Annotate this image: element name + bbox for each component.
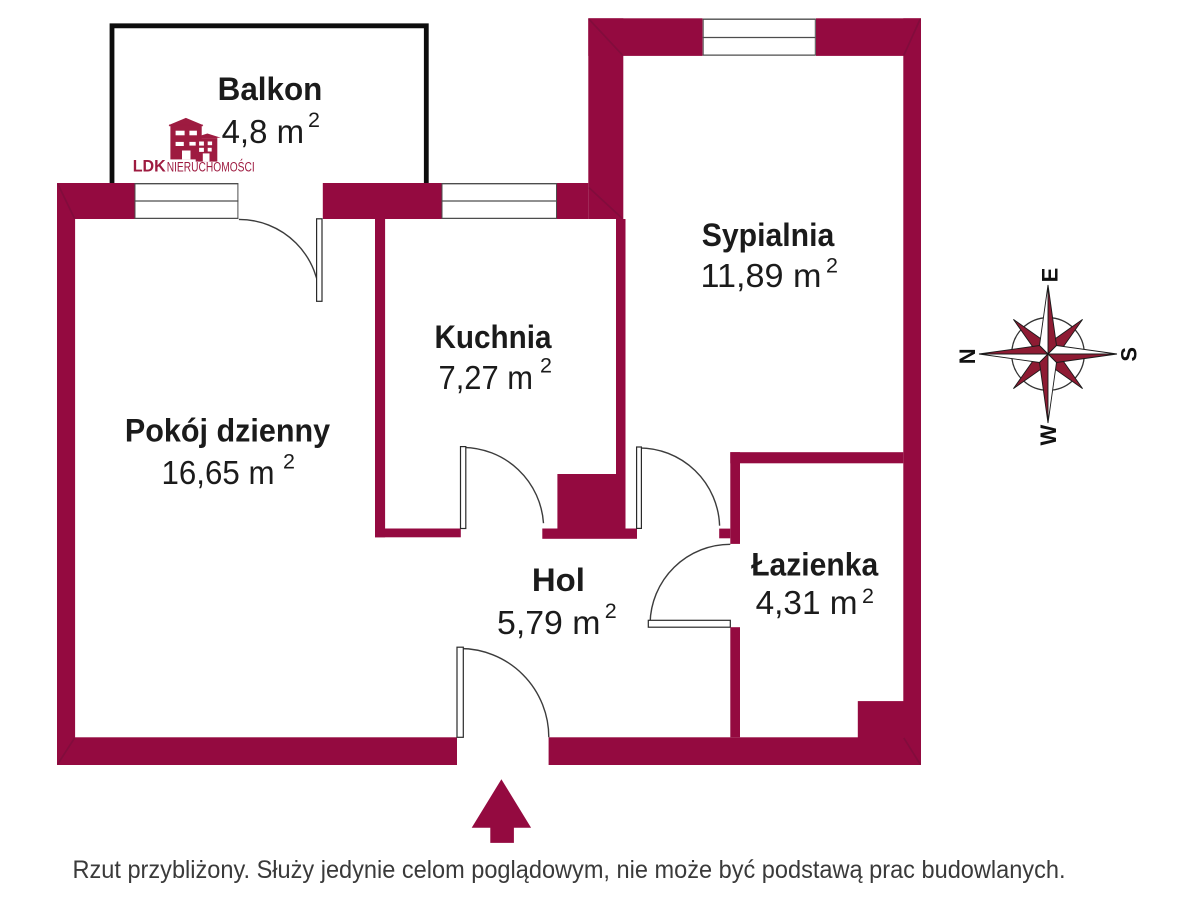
svg-text:Sypialnia: Sypialnia: [702, 217, 835, 253]
svg-text:E: E: [1038, 268, 1063, 283]
svg-text:NIERUCHOMOŚCI: NIERUCHOMOŚCI: [167, 160, 255, 175]
svg-text:Pokój dzienny: Pokój dzienny: [125, 413, 330, 449]
svg-text:W: W: [1036, 424, 1061, 445]
svg-text:7,27 m: 7,27 m: [439, 360, 534, 397]
svg-text:S: S: [1117, 347, 1142, 362]
svg-text:2: 2: [826, 254, 838, 278]
svg-text:2: 2: [605, 599, 617, 623]
svg-text:LDK: LDK: [133, 158, 166, 176]
svg-text:2: 2: [283, 450, 295, 474]
svg-text:16,65 m: 16,65 m: [162, 455, 275, 492]
svg-text:Hol: Hol: [532, 562, 585, 598]
svg-text:4,8 m: 4,8 m: [222, 114, 305, 151]
svg-text:2: 2: [308, 108, 320, 132]
svg-text:Łazienka: Łazienka: [751, 547, 879, 583]
svg-text:5,79 m: 5,79 m: [497, 605, 601, 642]
svg-text:4,31 m: 4,31 m: [756, 585, 858, 622]
svg-text:2: 2: [862, 584, 874, 608]
svg-text:Kuchnia: Kuchnia: [435, 319, 553, 355]
svg-text:N: N: [955, 348, 980, 364]
svg-text:Rzut przybliżony. Służy jedyni: Rzut przybliżony. Służy jedynie celom po…: [73, 857, 1066, 884]
svg-text:2: 2: [540, 354, 552, 378]
svg-text:11,89 m: 11,89 m: [701, 258, 822, 295]
svg-text:Balkon: Balkon: [218, 71, 323, 107]
